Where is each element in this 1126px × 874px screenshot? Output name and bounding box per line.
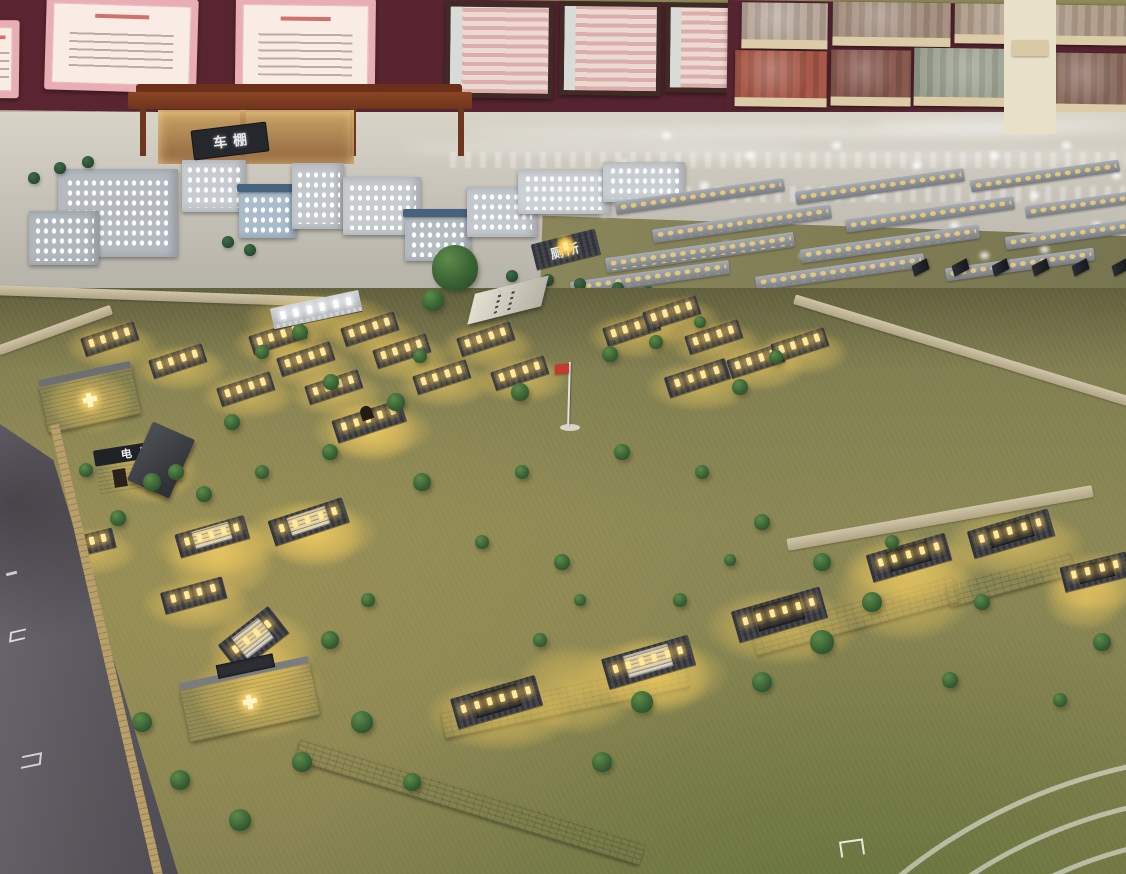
- ceiling-light-reflection: [1062, 142, 1071, 149]
- lit-window: [1084, 567, 1091, 576]
- lit-window: [625, 660, 632, 669]
- model-tree: [974, 594, 990, 610]
- model-tree: [1093, 633, 1111, 651]
- model-tree: [574, 594, 586, 606]
- model-tree: [862, 592, 882, 612]
- ceiling-light-reflection: [1030, 192, 1039, 199]
- red-flag: [555, 363, 569, 374]
- lit-window: [346, 296, 353, 305]
- lit-window: [196, 587, 203, 596]
- model-tree: [533, 633, 547, 647]
- model-tree: [351, 711, 373, 733]
- lit-window: [279, 310, 286, 319]
- wall-photo: [1051, 53, 1126, 114]
- lit-window: [236, 384, 243, 393]
- model-tree: [170, 770, 190, 790]
- wall-photo: [735, 50, 828, 107]
- model-stage-gateway: [128, 84, 472, 170]
- lit-window: [727, 325, 734, 334]
- model-tree: [673, 593, 687, 607]
- lit-window: [443, 369, 450, 378]
- lit-window: [377, 410, 384, 419]
- gateway-post: [458, 108, 464, 156]
- model-tree: [813, 553, 831, 571]
- model-tree: [1053, 693, 1067, 707]
- lit-window: [633, 321, 640, 330]
- distant-model-tree: [506, 270, 518, 282]
- cross-window: [82, 392, 99, 409]
- glass-light-streak: [870, 120, 1126, 132]
- model-tree: [695, 465, 709, 479]
- ceiling-light-reflection: [1040, 246, 1049, 253]
- lit-window: [664, 649, 671, 658]
- lit-window: [353, 418, 360, 427]
- lit-window: [156, 360, 163, 369]
- model-tree: [942, 672, 958, 688]
- lit-window: [755, 613, 762, 622]
- lit-window: [713, 365, 720, 374]
- lit-window: [420, 376, 427, 385]
- model-tree: [614, 444, 630, 460]
- lit-window: [319, 302, 326, 311]
- lit-window: [521, 365, 528, 374]
- lit-window: [460, 704, 467, 713]
- model-tree: [732, 379, 748, 395]
- lit-window: [919, 546, 926, 555]
- lit-window: [347, 375, 354, 384]
- model-tree: [321, 631, 339, 649]
- lit-window: [610, 328, 617, 337]
- certificate-frame: [44, 0, 199, 94]
- lit-window: [510, 368, 517, 377]
- exhibition-model-photo: 车棚 厕所 电房: [0, 0, 1126, 874]
- lit-window: [111, 331, 118, 340]
- lit-window: [233, 523, 240, 532]
- model-tree: [592, 752, 612, 772]
- model-tree: [554, 554, 570, 570]
- lit-window: [455, 365, 462, 374]
- lit-window: [790, 340, 797, 349]
- lit-window: [757, 353, 764, 362]
- lit-window: [191, 349, 198, 358]
- wall-photo-caption: [735, 97, 827, 107]
- monument-inscription: [507, 288, 515, 311]
- model-tree: [810, 630, 834, 654]
- lit-window: [224, 388, 231, 397]
- lit-window: [782, 605, 789, 614]
- lit-window: [486, 696, 493, 705]
- lit-window: [650, 312, 657, 321]
- glass-light-streak: [650, 152, 1126, 160]
- lit-window: [101, 533, 108, 542]
- lit-window: [100, 334, 107, 343]
- gateway-post: [140, 108, 146, 156]
- lit-window: [612, 664, 619, 673]
- lit-window: [795, 601, 802, 610]
- lit-window: [360, 324, 367, 333]
- lit-window: [319, 347, 326, 356]
- lit-window: [284, 358, 291, 367]
- lit-window: [392, 346, 399, 355]
- model-tree: [196, 486, 212, 502]
- model-tree: [631, 691, 653, 713]
- ceiling-light-reflection: [662, 132, 671, 139]
- model-tree: [724, 554, 736, 566]
- lit-window: [332, 299, 339, 308]
- lit-window: [692, 336, 699, 345]
- lit-window: [524, 686, 531, 695]
- model-tree: [432, 245, 478, 291]
- model-tree: [361, 593, 375, 607]
- lit-window: [533, 361, 540, 370]
- flagpole-base: [560, 424, 580, 431]
- lit-window: [291, 519, 298, 528]
- lit-window: [231, 645, 240, 654]
- model-tree: [475, 535, 489, 549]
- model-tree: [110, 510, 126, 526]
- lit-window: [371, 321, 378, 330]
- lit-window: [415, 339, 422, 348]
- lit-window: [978, 534, 985, 543]
- lit-window: [317, 511, 324, 520]
- lit-window: [511, 689, 518, 698]
- model-tree: [413, 473, 431, 491]
- lit-window: [715, 329, 722, 338]
- certificate-paper: [51, 3, 191, 87]
- lit-window: [746, 356, 753, 365]
- campus-building: [239, 190, 297, 238]
- wall-photo-image: [831, 49, 912, 97]
- lit-window: [673, 378, 680, 387]
- ceiling-light-reflection: [832, 142, 841, 149]
- model-tree: [885, 535, 899, 549]
- model-tree: [754, 514, 770, 530]
- lit-window: [742, 617, 749, 626]
- lit-window: [487, 331, 494, 340]
- lit-window: [476, 334, 483, 343]
- lit-window: [170, 594, 177, 603]
- model-tree: [511, 383, 529, 401]
- platform-paint-mark: [9, 628, 26, 642]
- lit-window: [662, 308, 669, 317]
- model-tree: [255, 465, 269, 479]
- lit-window: [933, 542, 940, 551]
- lit-window: [168, 356, 175, 365]
- lit-window: [196, 533, 203, 542]
- lit-window: [1113, 560, 1120, 569]
- model-tree: [143, 473, 161, 491]
- model-tree: [752, 672, 772, 692]
- wall-photo-caption: [831, 96, 911, 106]
- lit-window: [403, 343, 410, 352]
- model-tree: [422, 289, 444, 311]
- lit-window: [340, 422, 347, 431]
- lit-window: [296, 354, 303, 363]
- lit-window: [259, 377, 266, 386]
- wall-photo: [832, 1, 951, 47]
- campus-building: [518, 170, 610, 214]
- wall-photo-image: [735, 50, 828, 98]
- distant-model-tree: [28, 172, 40, 184]
- lit-window: [263, 619, 272, 628]
- lit-window: [1007, 526, 1014, 535]
- lit-window: [312, 386, 319, 395]
- lit-window: [123, 327, 130, 336]
- lit-window: [380, 350, 387, 359]
- lit-window: [768, 609, 775, 618]
- model-tree: [292, 752, 312, 772]
- lit-window: [673, 305, 680, 314]
- model-tree: [403, 773, 421, 791]
- lit-window: [252, 628, 261, 637]
- lit-window: [88, 338, 95, 347]
- model-tree: [413, 349, 427, 363]
- lit-window: [278, 523, 285, 532]
- lit-window: [677, 645, 684, 654]
- lit-window: [473, 700, 480, 709]
- honor-roll-paper: [564, 6, 657, 91]
- lit-window: [1021, 522, 1028, 531]
- ceiling-light-reflection: [745, 152, 754, 159]
- lit-window: [210, 584, 217, 593]
- model-tree: [515, 465, 529, 479]
- lit-window: [700, 369, 707, 378]
- lit-window: [256, 336, 263, 345]
- lit-window: [348, 328, 355, 337]
- lit-window: [208, 530, 215, 539]
- lit-window: [622, 324, 629, 333]
- honor-roll-board: [559, 1, 662, 96]
- model-tree: [387, 393, 405, 411]
- lit-window: [179, 353, 186, 362]
- lit-window: [1099, 563, 1106, 572]
- lit-window: [307, 351, 314, 360]
- blue-roof: [403, 209, 473, 217]
- lit-window: [304, 515, 311, 524]
- model-tree: [255, 345, 269, 359]
- bike-shed-sign-label: 车棚: [206, 128, 254, 153]
- pillar-plaque: [1012, 40, 1048, 56]
- model-tree: [292, 324, 308, 340]
- ceiling-light-reflection: [980, 252, 989, 259]
- lit-window: [877, 558, 884, 567]
- model-tree: [694, 316, 706, 328]
- campus-building: [29, 211, 99, 265]
- wall-photo-image: [741, 2, 828, 40]
- lit-window: [293, 308, 300, 317]
- lit-window: [306, 305, 313, 314]
- gateway-beam: [128, 92, 472, 109]
- blue-roof: [237, 184, 298, 192]
- model-tree: [224, 414, 240, 430]
- lit-window: [638, 657, 645, 666]
- arch-doorway: [359, 404, 375, 421]
- lit-window: [905, 550, 912, 559]
- lit-window: [813, 333, 820, 342]
- platform-paint-mark: [6, 571, 17, 577]
- lit-window: [704, 332, 711, 341]
- lit-window: [992, 530, 999, 539]
- goal-frame: [839, 838, 865, 857]
- lit-window: [247, 381, 254, 390]
- lit-window: [499, 693, 506, 702]
- model-tree: [769, 350, 783, 364]
- certificate-frame: [0, 20, 20, 98]
- lit-window: [734, 360, 741, 369]
- model-tree: [322, 444, 338, 460]
- lit-window: [499, 327, 506, 336]
- wall-photo-caption: [832, 36, 950, 47]
- ceiling-light-reflection: [990, 152, 999, 159]
- monument-inscription: [494, 291, 502, 314]
- lit-window: [432, 372, 439, 381]
- model-tree: [168, 464, 184, 480]
- wall-photo: [741, 2, 828, 49]
- lit-window: [331, 506, 338, 515]
- doorway: [112, 468, 128, 488]
- lit-window: [801, 337, 808, 346]
- wall-photo-image: [1052, 53, 1126, 105]
- wall-photo: [831, 49, 912, 106]
- wall-pillar: [1004, 0, 1056, 134]
- platform-paint-mark: [21, 752, 42, 769]
- model-tree: [132, 712, 152, 732]
- lit-window: [685, 301, 692, 310]
- lit-window: [808, 598, 815, 607]
- model-tree: [649, 335, 663, 349]
- ceiling-light-reflection: [1112, 172, 1121, 179]
- campus-building: [292, 163, 344, 229]
- ceiling-light-reflection: [912, 162, 921, 169]
- lit-window: [562, 242, 569, 251]
- lit-window: [183, 537, 190, 546]
- certificate-paper: [0, 27, 13, 91]
- distant-model-tree: [54, 162, 66, 174]
- distant-model-tree: [82, 156, 94, 168]
- lit-window: [498, 372, 505, 381]
- model-tree: [79, 463, 93, 477]
- model-tree: [229, 809, 251, 831]
- lit-window: [220, 526, 227, 535]
- lit-window: [891, 554, 898, 563]
- lit-window: [651, 653, 658, 662]
- lit-window: [268, 332, 275, 341]
- distant-model-tree: [244, 244, 256, 256]
- cross-window: [242, 694, 259, 711]
- lit-window: [687, 374, 694, 383]
- model-tree: [323, 374, 339, 390]
- lit-window: [383, 317, 390, 326]
- lit-window: [1035, 518, 1042, 527]
- lit-window: [88, 536, 95, 545]
- certificate-paper: [242, 4, 369, 96]
- lit-window: [464, 338, 471, 347]
- lit-window: [242, 636, 251, 645]
- wall-photo-caption: [741, 39, 827, 49]
- wall-photo-image: [833, 1, 951, 38]
- distant-model-tree: [222, 236, 234, 248]
- honor-roll-paper: [450, 7, 549, 94]
- model-tree: [602, 346, 618, 362]
- lit-window: [183, 591, 190, 600]
- lit-window: [1070, 571, 1077, 580]
